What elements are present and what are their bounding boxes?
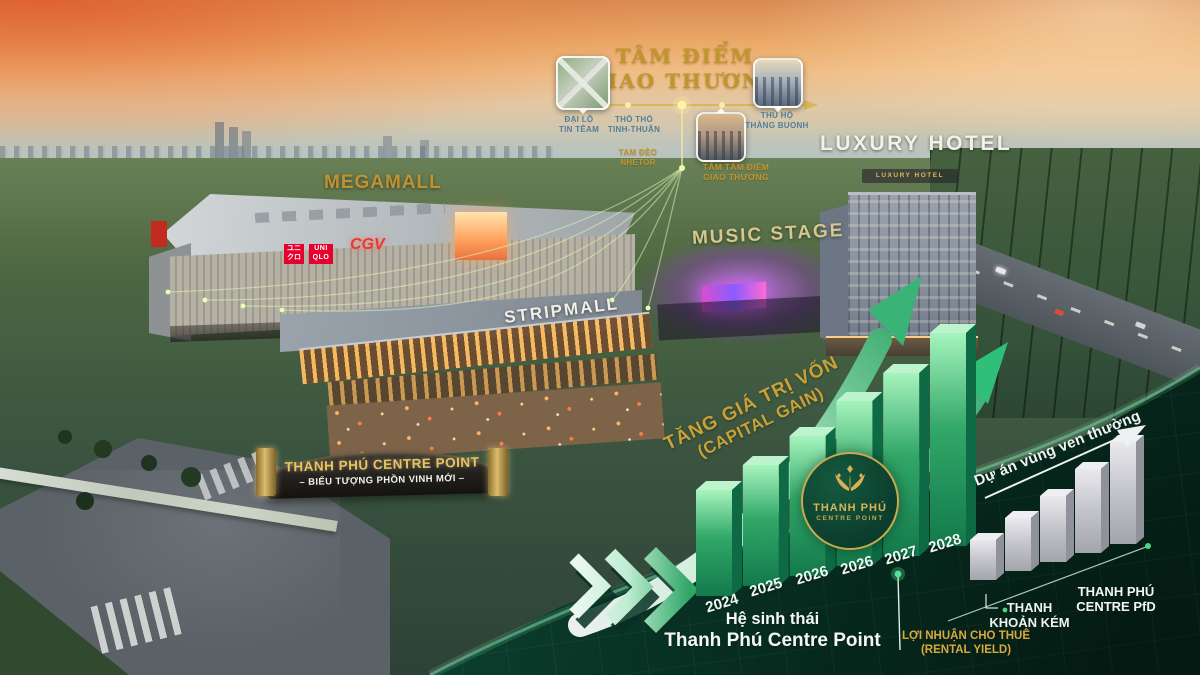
poster-canvas: ユニクロ UNI QLO CGV LUXURY HOTEL [0,0,1200,675]
timeline-node-label: THỔ THỔTINH-THUẬN [602,115,666,135]
megamall-label: MEGAMALL [324,172,442,194]
timeline-node-label: TÂM TÂM ĐIỂMGIAO THƯƠNG [688,162,784,182]
luxury-hotel-label: LUXURY HOTEL [820,132,1012,156]
logo-name: THANH PHÚ [803,502,897,514]
timeline-arrowhead [804,100,818,110]
ecosystem-caption: Hệ sinh thái Thanh Phú Centre Point [655,609,890,652]
logo-subtitle: CENTRE POINT [803,515,897,522]
interchange-thumbnail [556,56,610,110]
entrance-gate-sign: THANH PHÚ CENTRE POINT – BIỂU TƯỢNG PHỒN… [256,446,508,504]
trade-hub-thumbnail [696,112,746,162]
city-thumbnail [753,58,803,108]
timeline-node-label: THỦ HỘTHÀNG BUONH [744,111,810,131]
rental-yield-caption: LỢI NHUẬN CHO THUÊ (RENTAL YIELD) [902,629,1030,657]
thanh-phu-label: THANH PHÚ CENTRE PfD [1060,584,1172,614]
timeline-node-label: TAM ĐÈONHETOR [606,148,670,168]
project-logo-badge: THANH PHÚ CENTRE POINT [801,452,899,550]
timeline-node-label: ĐẠI LỘTIN TÊAM [550,115,608,135]
logo-emblem-icon [830,465,870,495]
